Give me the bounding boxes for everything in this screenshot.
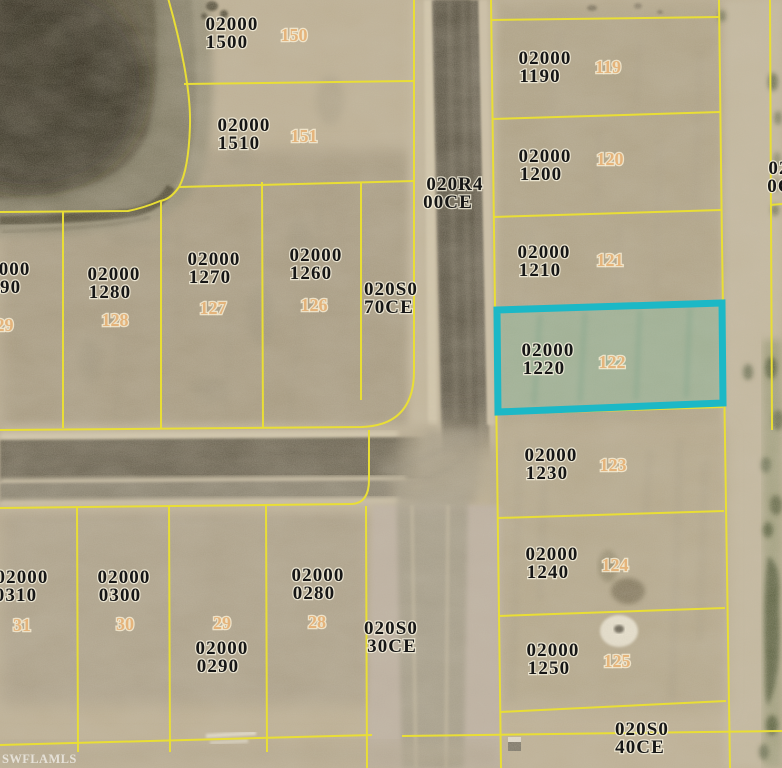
svg-text:151: 151 <box>291 126 318 146</box>
svg-text:1190: 1190 <box>519 66 560 87</box>
svg-text:150: 150 <box>281 25 308 45</box>
svg-text:70CE: 70CE <box>364 297 414 318</box>
svg-text:0300: 0300 <box>99 585 141 606</box>
svg-text:0280: 0280 <box>293 583 335 604</box>
svg-text:1500: 1500 <box>206 32 248 53</box>
svg-text:30: 30 <box>116 614 134 634</box>
svg-text:40CE: 40CE <box>615 737 665 758</box>
svg-text:1250: 1250 <box>528 658 570 679</box>
svg-text:30CE: 30CE <box>367 636 417 657</box>
svg-text:1510: 1510 <box>218 133 260 154</box>
svg-text:1210: 1210 <box>519 260 561 281</box>
svg-text:121: 121 <box>597 250 624 270</box>
svg-text:1290: 1290 <box>0 277 21 298</box>
svg-text:29: 29 <box>213 613 231 633</box>
svg-text:1260: 1260 <box>290 263 332 284</box>
svg-text:0C: 0C <box>767 176 782 197</box>
svg-text:1280: 1280 <box>89 282 131 303</box>
svg-text:1230: 1230 <box>526 463 568 484</box>
svg-text:1270: 1270 <box>189 267 231 288</box>
svg-text:125: 125 <box>604 651 631 671</box>
svg-text:1240: 1240 <box>527 562 569 583</box>
svg-text:SWFLAMLS: SWFLAMLS <box>2 752 77 766</box>
svg-text:128: 128 <box>102 310 129 330</box>
svg-text:123: 123 <box>600 455 627 475</box>
svg-text:120: 120 <box>597 149 624 169</box>
svg-text:122: 122 <box>599 352 626 372</box>
svg-text:126: 126 <box>301 295 328 315</box>
svg-text:1220: 1220 <box>523 358 565 379</box>
svg-text:0290: 0290 <box>197 656 239 677</box>
svg-text:00CE: 00CE <box>423 192 473 213</box>
svg-text:119: 119 <box>595 57 621 77</box>
svg-text:1200: 1200 <box>520 164 562 185</box>
svg-text:28: 28 <box>308 612 326 632</box>
svg-text:129: 129 <box>0 315 14 335</box>
svg-text:31: 31 <box>13 615 31 635</box>
svg-text:127: 127 <box>200 298 227 318</box>
svg-text:124: 124 <box>602 555 629 575</box>
svg-text:0310: 0310 <box>0 585 37 606</box>
